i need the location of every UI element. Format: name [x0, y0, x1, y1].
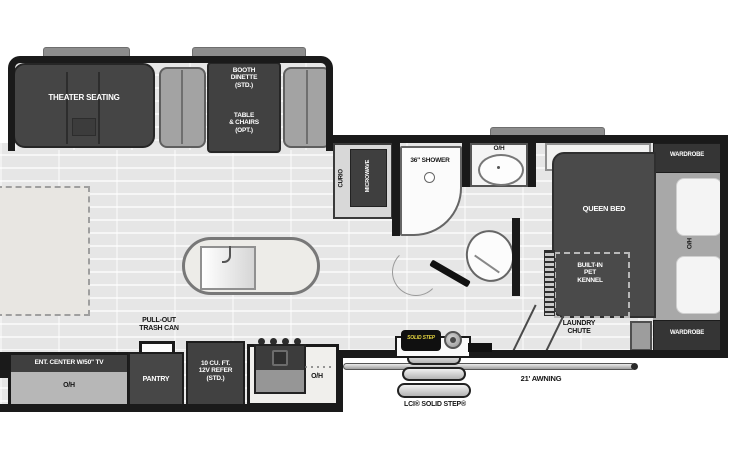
counter-dot	[329, 366, 331, 368]
sink-right-wall	[528, 143, 536, 187]
wardrobe-top-label: WARDROBE	[653, 152, 721, 159]
bath-door-swing-arc	[392, 248, 440, 296]
awning-bar	[343, 363, 635, 370]
awning-label: 21' AWNING	[505, 375, 577, 383]
counter-dot	[317, 366, 319, 368]
kitchen-oh-label: O/H	[300, 373, 334, 381]
front-wall-stub	[0, 352, 8, 378]
counter-dot	[311, 366, 313, 368]
entry-step-3	[397, 383, 471, 398]
ent-center-label: ENT. CENTER W/50" TV	[11, 359, 127, 366]
ent-oh-label: O/H	[11, 382, 127, 390]
awning-end-cap	[631, 363, 638, 370]
bed-pillow-bottom	[676, 256, 722, 314]
counter-dot	[305, 366, 307, 368]
entry-step-2	[402, 367, 466, 381]
toilet-right-wall	[512, 218, 520, 296]
vent-icon-center	[450, 337, 456, 343]
pet-kennel-label: BUILT-IN PET KENNEL	[554, 262, 626, 284]
living-slide-wall	[8, 56, 333, 151]
shower-sink-divider-wall	[462, 143, 470, 187]
shower-head-icon	[424, 172, 435, 183]
curio-label: CURIO	[339, 154, 346, 202]
bed-pillow-top	[676, 178, 722, 236]
wardrobe-bottom-label: WARDROBE	[653, 330, 721, 337]
right-wall	[720, 135, 728, 358]
laundry-chute-label: LAUNDRY CHUTE	[546, 320, 612, 336]
bath-sink-basin	[478, 154, 524, 186]
bath-sink-drain-icon	[497, 166, 500, 169]
solid-step-badge-label: SOLID STEP	[401, 336, 441, 342]
dashed-option-area	[0, 186, 90, 316]
counter-dot	[323, 366, 325, 368]
bath-oh-label: O/H	[470, 145, 528, 152]
pull-out-trash-label: PULL-OUT TRASH CAN	[126, 317, 192, 333]
table-chairs-label: TABLE & CHAIRS (OPT.)	[207, 112, 281, 134]
door-hinge-block	[468, 343, 492, 352]
theater-seating-label: THEATER SEATING	[13, 94, 155, 103]
bed-oh-label: O/H	[686, 222, 693, 266]
refrigerator-label: 10 CU. FT. 12V REFER (STD.)	[186, 360, 245, 382]
booth-dinette-label: BOOTH DINETTE (STD.)	[207, 67, 281, 89]
queen-bed-label: QUEEN BED	[552, 205, 656, 213]
microwave-label: MICROWAVE	[365, 148, 371, 204]
laundry-chute-box	[630, 321, 652, 351]
pantry-label: PANTRY	[128, 376, 184, 384]
solid-step-label: LCI® SOLID STEP®	[383, 401, 487, 409]
bottom-wall-door-left	[338, 350, 398, 358]
bottom-wall-right	[466, 350, 728, 358]
top-wall	[326, 135, 728, 143]
shower-label: 36" SHOWER	[399, 157, 461, 164]
kitchen-slide-bottom-wall	[0, 404, 343, 412]
rv-floorplan: THEATER SEATING BOOTH DINETTE (STD.) TAB…	[0, 0, 731, 469]
kitchen-slide-right-wall	[336, 350, 343, 412]
stove-burner-icon	[272, 350, 288, 366]
